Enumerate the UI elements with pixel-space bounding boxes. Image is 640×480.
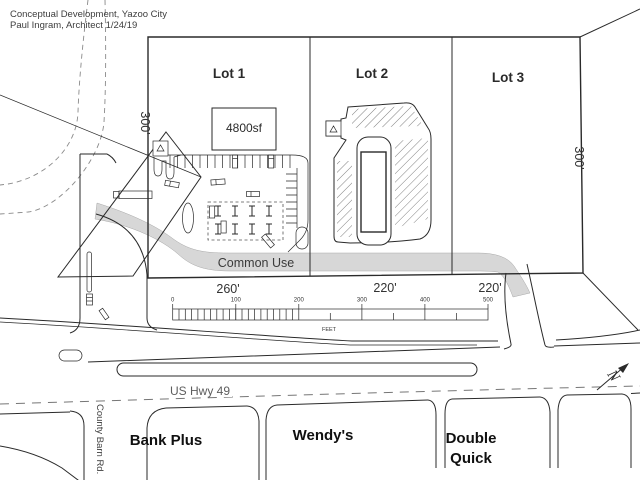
lot2-building xyxy=(361,152,386,232)
common-use-drive xyxy=(95,203,530,297)
se-corner-diagonal xyxy=(583,273,638,330)
scale-unit-label: FEET xyxy=(322,327,337,333)
dumpster-pad-lot1 xyxy=(153,141,168,156)
label-ticks xyxy=(173,304,488,309)
us-hwy-49 xyxy=(0,318,640,414)
scale-tick-200: 200 xyxy=(294,298,305,304)
scale-tick-300: 300 xyxy=(357,298,368,304)
scale-tick-0: 0 xyxy=(171,298,175,304)
depth-east-label: 300' xyxy=(572,146,586,169)
parking-hatch-west xyxy=(337,161,352,237)
semi-truck xyxy=(114,191,153,199)
small-truck xyxy=(87,294,93,305)
mid-ticks xyxy=(330,313,456,320)
drawing-title-line2: Paul Ingram, Architect 1/24/19 xyxy=(10,20,137,31)
existing-road-dashed-edges xyxy=(0,0,106,214)
site-plan-canvas: 0 100 200 300 400 500 FEET N Conceptual … xyxy=(0,0,640,480)
pavement-east-edge xyxy=(288,155,308,252)
common-use-label: Common Use xyxy=(218,256,294,270)
neighbor-doublequick-label-line2: Quick xyxy=(450,450,492,467)
lot2-label: Lot 2 xyxy=(356,66,388,81)
highway-median xyxy=(117,363,477,376)
highway-label: US Hwy 49 xyxy=(170,384,230,398)
depth-west-label: 300' xyxy=(138,111,152,134)
lot2-frontage-label: 220' xyxy=(373,281,396,295)
building-area-label: 4800sf xyxy=(226,121,263,135)
turn-island xyxy=(59,350,82,361)
scale-tick-100: 100 xyxy=(231,298,242,304)
parking-hatch-north xyxy=(352,106,423,128)
lot1-label: Lot 1 xyxy=(213,66,246,81)
dumpster-pad-lot2 xyxy=(326,121,341,136)
center-line xyxy=(0,386,640,404)
parking-stalls-north-row xyxy=(170,155,290,168)
lot3-label: Lot 3 xyxy=(492,70,525,85)
neighbor-doublequick-label-line1: Double xyxy=(446,430,497,447)
ne-corner-diagonal xyxy=(580,9,640,37)
side-street-label: County Barn Rd. xyxy=(94,404,105,474)
neighbor-wendys-label: Wendy's xyxy=(293,427,354,444)
lot2-improvements xyxy=(326,103,431,245)
parking-hatch-east xyxy=(395,138,428,228)
fuel-pump-islands xyxy=(215,206,272,234)
car-on-road xyxy=(99,308,109,320)
lot3-frontage-label: 220' xyxy=(478,281,501,295)
drawing-title-line1: Conceptual Development, Yazoo City xyxy=(10,9,167,20)
landscape-island xyxy=(183,203,194,233)
scale-bar: 0 100 200 300 400 500 FEET xyxy=(171,298,494,334)
lot1-frontage-label: 260' xyxy=(216,282,239,296)
survey-lines xyxy=(0,95,201,277)
scale-tick-400: 400 xyxy=(420,298,431,304)
median-stripe xyxy=(87,252,92,292)
scale-tick-500: 500 xyxy=(483,298,494,304)
site-plan-drawing: 0 100 200 300 400 500 FEET N Conceptual … xyxy=(0,0,640,480)
parking-stalls-east-row xyxy=(286,174,297,223)
neighbor-bank-label: Bank Plus xyxy=(130,432,203,449)
